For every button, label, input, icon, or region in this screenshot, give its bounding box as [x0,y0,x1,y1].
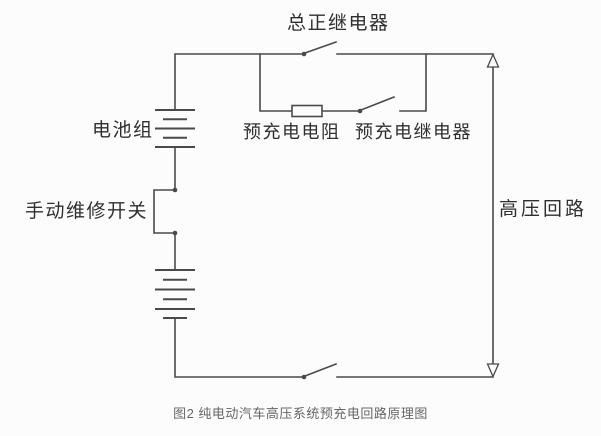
battery-pack-symbol-top [156,110,194,147]
high-voltage-loop-label: 高压回路 [499,199,587,221]
main-negative-relay-switch [302,364,336,379]
arrowhead-down [488,364,499,377]
high-voltage-loop-arrow [488,55,499,377]
precharge-resistor-label: 预充电电阻 [243,121,341,143]
arrowhead-up [488,55,499,68]
figure-caption: 图2 纯电动汽车高压系统预充电回路原理图 [0,403,601,422]
precharge-circuit-figure: 总正继电器 电池组 预充电电阻 预充电继电器 手动维修开关 高压回路 图2 纯电… [0,0,601,436]
wire [175,318,303,377]
manual-service-switch-symbol [154,188,177,236]
wires [175,54,493,377]
wire [400,54,426,111]
precharge-relay-label: 预充电继电器 [355,121,472,143]
precharge-resistor-symbol [292,106,322,117]
main-positive-relay-label: 总正继电器 [287,13,390,35]
precharge-relay-switch [358,97,394,113]
main-positive-relay-switch [302,42,336,56]
battery-pack-symbol-bottom [156,270,194,318]
wire [260,54,292,111]
manual-service-switch-label: 手动维修开关 [25,201,148,223]
battery-pack-label: 电池组 [92,120,154,142]
wire [175,54,303,110]
